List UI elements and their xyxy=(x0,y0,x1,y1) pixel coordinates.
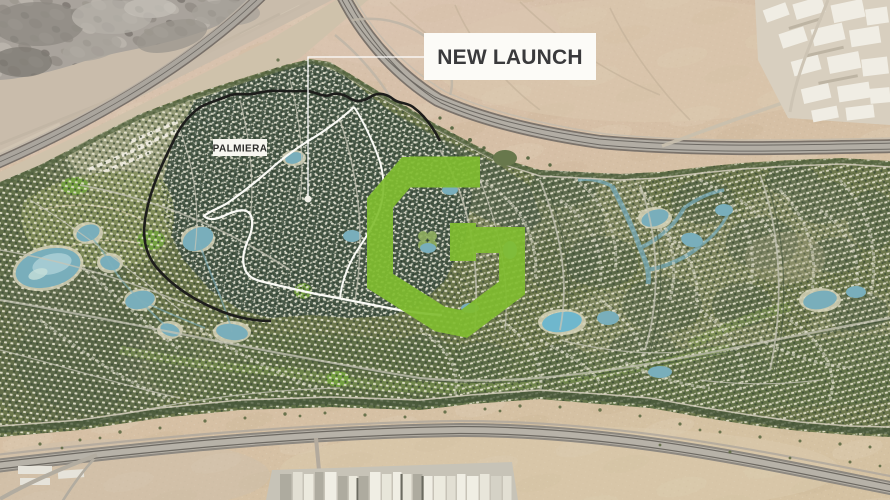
svg-text:PALMIERA: PALMIERA xyxy=(213,144,268,155)
svg-text:NEW LAUNCH: NEW LAUNCH xyxy=(437,46,582,69)
